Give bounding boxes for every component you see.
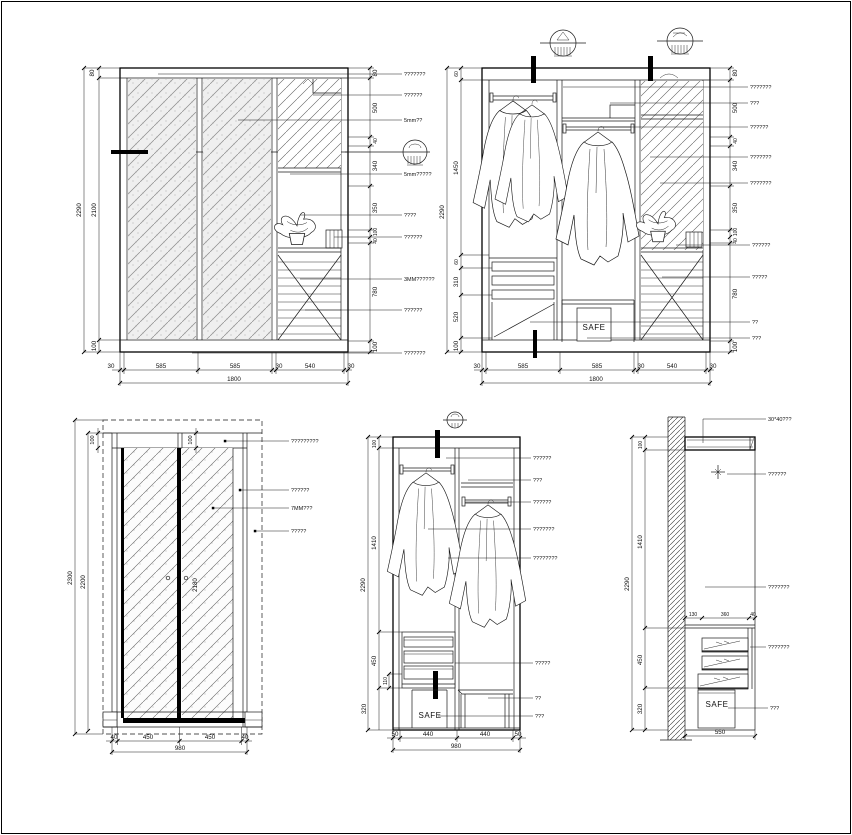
dim-label: 1410: [637, 535, 644, 549]
note-label: 5mm?????: [404, 172, 432, 178]
note-label: ???????: [750, 85, 771, 91]
note-label: ???????: [404, 72, 425, 78]
safe-label: SAFE: [706, 700, 729, 709]
dim-label: 1410: [371, 536, 378, 550]
glass-panel-right: [203, 79, 271, 339]
note-label: ??????: [404, 93, 422, 99]
note-label: ??????: [291, 488, 309, 494]
dim-label: 40: [373, 238, 379, 244]
wardrobe-elevation-drawing: 80 2290 2100 100 80 500 40 340 350 100 4…: [0, 0, 852, 835]
note-label: ???????: [404, 351, 425, 357]
dim-total: 1800: [589, 376, 603, 383]
cad-sheet: 80 2290 2100 100 80 500 40 340 350 100 4…: [0, 0, 852, 835]
dim-label: 540: [305, 363, 316, 370]
dim-label: 450: [371, 655, 378, 666]
note-label: 7MM???: [291, 506, 312, 512]
door-leaf-right: [182, 448, 233, 718]
dim-label: 40: [373, 138, 379, 144]
open-drawer: [698, 674, 748, 689]
dim-label: 360: [721, 612, 730, 618]
dim-label: 2300: [67, 571, 74, 585]
note-label: ???????: [768, 645, 789, 651]
note-label: ?????????: [291, 439, 319, 445]
note-label: ??????: [750, 125, 768, 131]
dim-label: 340: [372, 160, 379, 171]
note-label: ???: [770, 706, 779, 712]
dim-label: 320: [637, 703, 644, 714]
dim-label: 80: [89, 69, 96, 76]
dim-label: 585: [518, 363, 529, 370]
note-label: ???: [535, 714, 544, 720]
dim-label: 100: [638, 441, 644, 450]
dim-label: 40: [733, 238, 739, 244]
dim-label: 100: [188, 435, 194, 444]
dim-label: 110: [383, 677, 389, 685]
dim-label: 440: [423, 731, 434, 738]
note-label: ???????: [533, 527, 554, 533]
note-label: ??: [535, 696, 541, 702]
dim-label: 80: [372, 69, 379, 76]
dim-label: 100: [91, 340, 98, 351]
dim-label: 450: [205, 734, 216, 741]
dim-label: 2200: [80, 575, 87, 589]
note-label: ???: [533, 478, 542, 484]
glass-panel-left: [128, 79, 196, 339]
dim-label: 540: [667, 363, 678, 370]
dim-label: 2290: [76, 203, 83, 217]
dim-total: 980: [175, 745, 186, 752]
note-label: ??????: [404, 308, 422, 314]
dim-label: 100: [733, 228, 739, 237]
dim-label: 100: [373, 228, 379, 237]
dim-label: 40: [111, 734, 118, 741]
dim-label: 100: [372, 440, 378, 449]
note-label: ???????: [750, 155, 771, 161]
dim-label: 440: [480, 731, 491, 738]
safe-box: SAFE: [698, 690, 735, 728]
dim-label: 30: [276, 363, 283, 370]
note-label: ???: [752, 336, 761, 342]
dim-label: 30: [348, 363, 355, 370]
note-label: 5mm??: [404, 118, 422, 124]
note-label: ??????: [533, 456, 551, 462]
dim-label: 100: [90, 435, 96, 444]
dim-label: 1450: [453, 161, 460, 175]
dim-label: 30: [638, 363, 645, 370]
dim-label: 2180: [192, 578, 199, 592]
note-label: ??: [752, 320, 758, 326]
dim-label: 585: [156, 363, 167, 370]
dim-label: 100: [372, 341, 379, 352]
dim-label: 30: [108, 363, 115, 370]
safe-label: SAFE: [583, 323, 606, 332]
note-label: ?????: [291, 529, 306, 535]
section-cut-mark: [111, 150, 148, 154]
note-label: ????: [404, 213, 416, 219]
dim-label: 60: [454, 259, 460, 265]
note-label: ??????: [404, 235, 422, 241]
note-label: ???????: [750, 181, 771, 187]
dim-label: 50: [392, 731, 399, 738]
dim-label: 30: [710, 363, 717, 370]
dim-label: 60: [454, 71, 460, 77]
open-drawer: [702, 638, 748, 652]
dim-label: 30: [474, 363, 481, 370]
dim-total: 1800: [227, 376, 241, 383]
dim-label: 2100: [91, 203, 98, 217]
dim-label: 100: [453, 340, 460, 351]
door-leaf-left: [124, 448, 177, 718]
dim-label: 500: [732, 102, 739, 113]
note-label: ???: [750, 101, 759, 107]
open-drawer: [702, 656, 748, 670]
dim-label: 80: [732, 69, 739, 76]
dim-label: 780: [372, 286, 379, 297]
note-label: 3MM??????: [404, 277, 435, 283]
dim-label: 340: [732, 160, 739, 171]
note-label: ??????: [768, 472, 786, 478]
safe-label: SAFE: [419, 711, 442, 720]
note-label: ??????: [752, 243, 770, 249]
dim-label: 2290: [439, 205, 446, 219]
dim-label: 450: [143, 734, 154, 741]
note-label: ?????: [535, 661, 550, 667]
dim-label: 2290: [624, 577, 631, 591]
note-label: 30*40???: [768, 417, 792, 423]
note-label: ????????: [533, 556, 557, 562]
dim-total: 980: [451, 743, 462, 750]
dim-label: 320: [361, 703, 368, 714]
dim-label: 2290: [360, 578, 367, 592]
dim-label: 585: [592, 363, 603, 370]
dim-label: 450: [637, 654, 644, 665]
dim-label: 100: [732, 341, 739, 352]
dim-label: 40: [733, 138, 739, 144]
dim-label: 130: [689, 612, 698, 618]
dim-label: 520: [453, 311, 460, 322]
wall-hatch: [668, 417, 685, 740]
dim-label: 550: [715, 729, 726, 736]
note-label: ???????: [768, 585, 789, 591]
dim-label: 350: [372, 202, 379, 213]
dim-label: 585: [230, 363, 241, 370]
dim-label: 310: [453, 276, 460, 287]
note-label: ??????: [533, 500, 551, 506]
dim-label: 40: [750, 612, 756, 618]
dim-label: 40: [242, 734, 249, 741]
dim-label: 50: [515, 731, 522, 738]
dim-label: 500: [372, 102, 379, 113]
note-label: ?????: [752, 275, 767, 281]
dim-label: 780: [732, 288, 739, 299]
dim-label: 350: [732, 202, 739, 213]
